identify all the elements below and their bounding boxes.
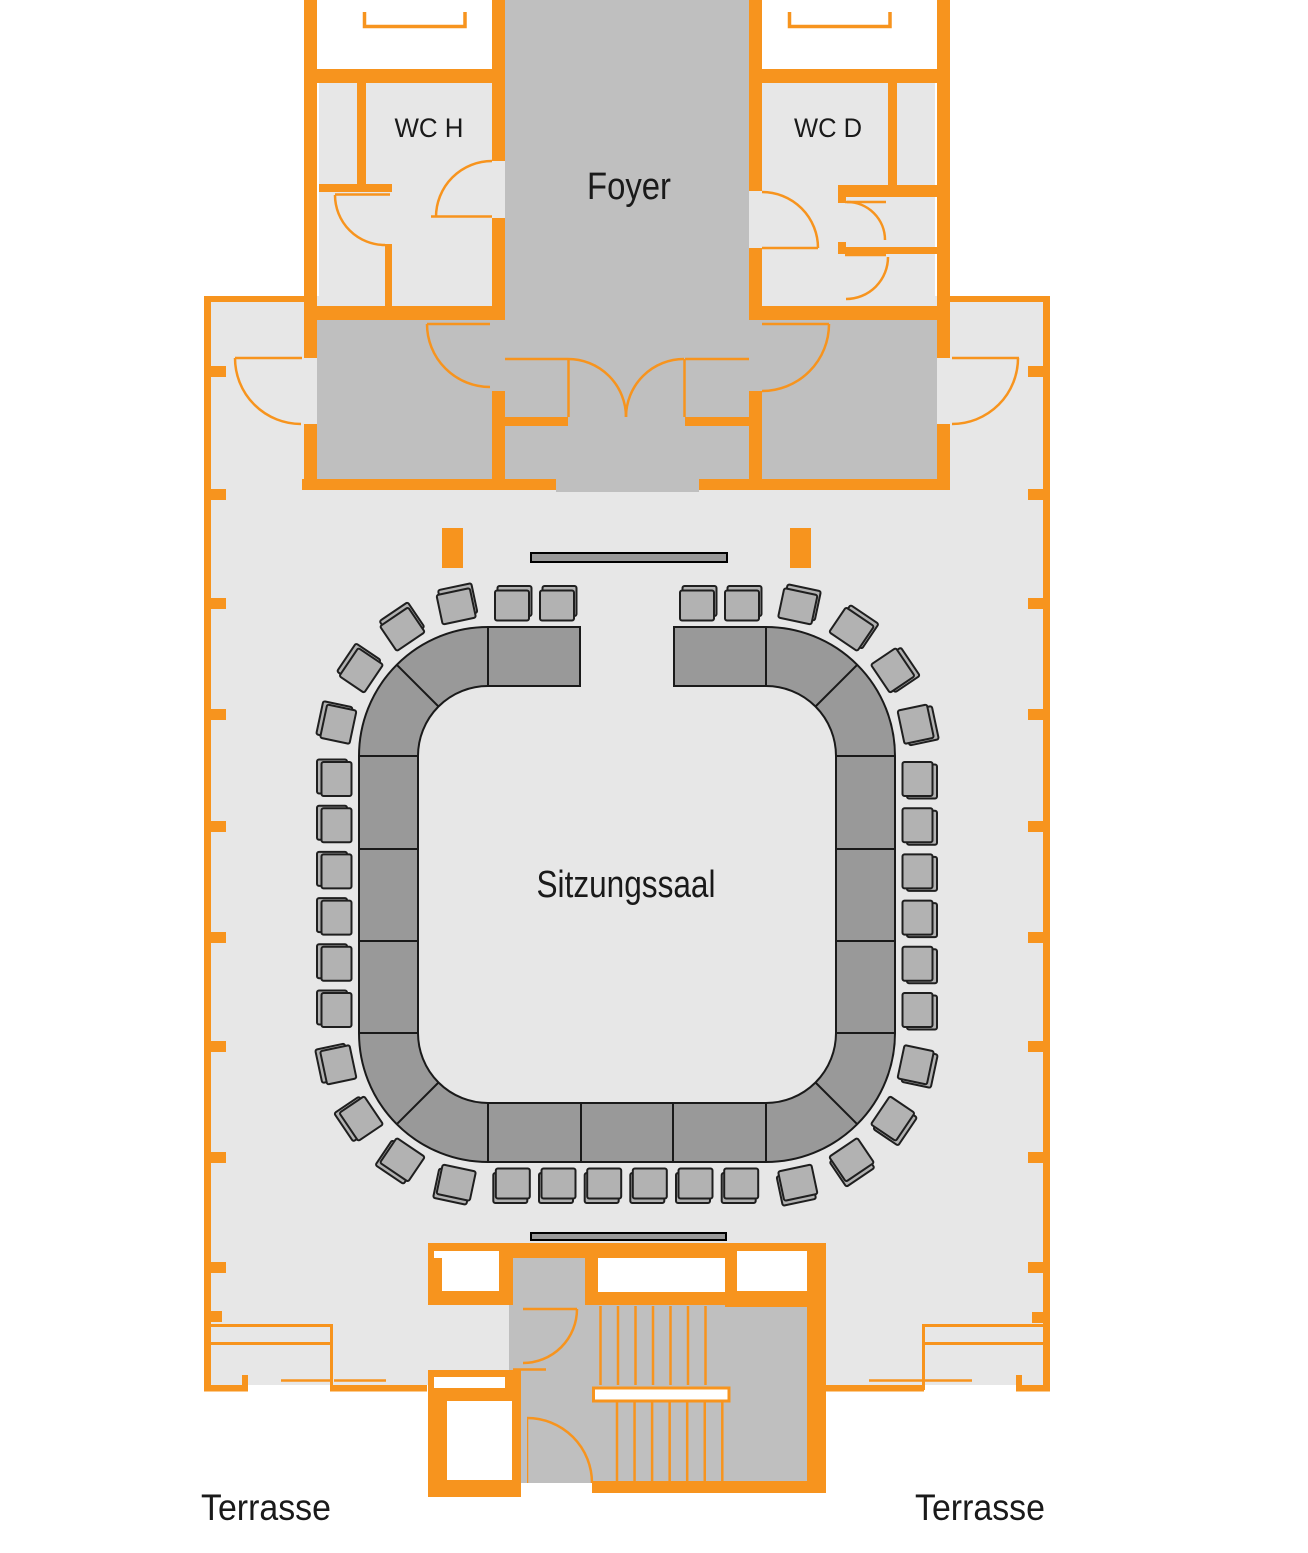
svg-text:WC H: WC H: [395, 113, 464, 143]
svg-text:Terrasse: Terrasse: [915, 1487, 1045, 1528]
svg-text:Terrasse: Terrasse: [201, 1487, 331, 1528]
svg-text:Sitzungssaal: Sitzungssaal: [537, 864, 716, 906]
svg-text:Foyer: Foyer: [587, 166, 671, 208]
svg-text:WC D: WC D: [794, 113, 862, 143]
